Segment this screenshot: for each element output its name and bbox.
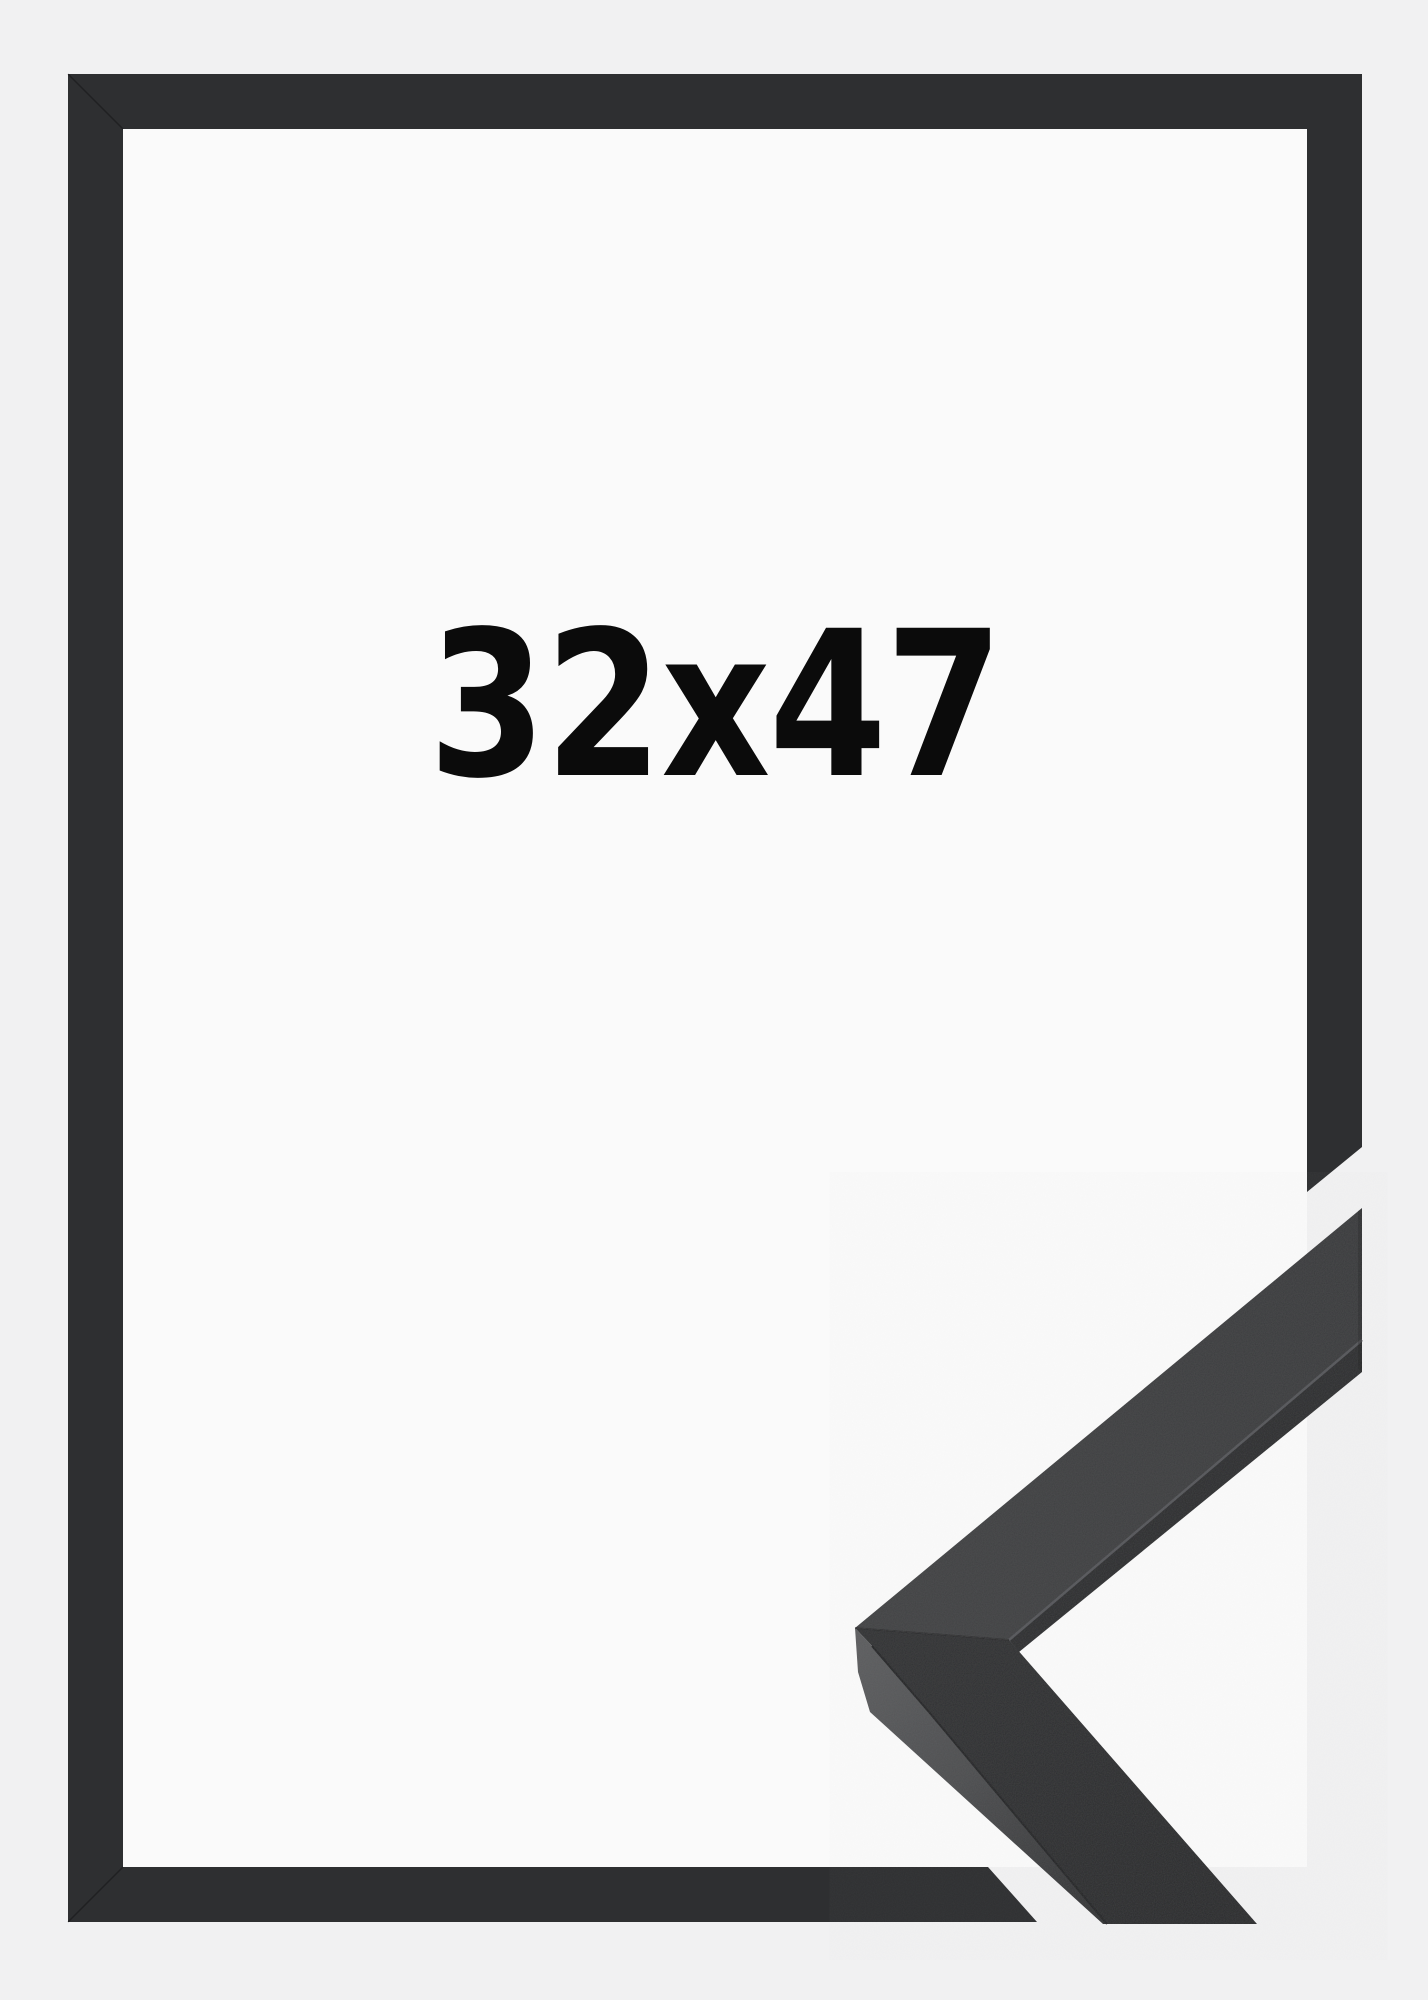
product-photo: 32x47 xyxy=(0,0,1428,2000)
frame-interior xyxy=(123,129,1307,1867)
closeup-upper-arm-end-cut xyxy=(1358,1208,1362,1372)
size-label: 32x47 xyxy=(114,560,1315,850)
frame-illustration xyxy=(0,0,1428,2000)
